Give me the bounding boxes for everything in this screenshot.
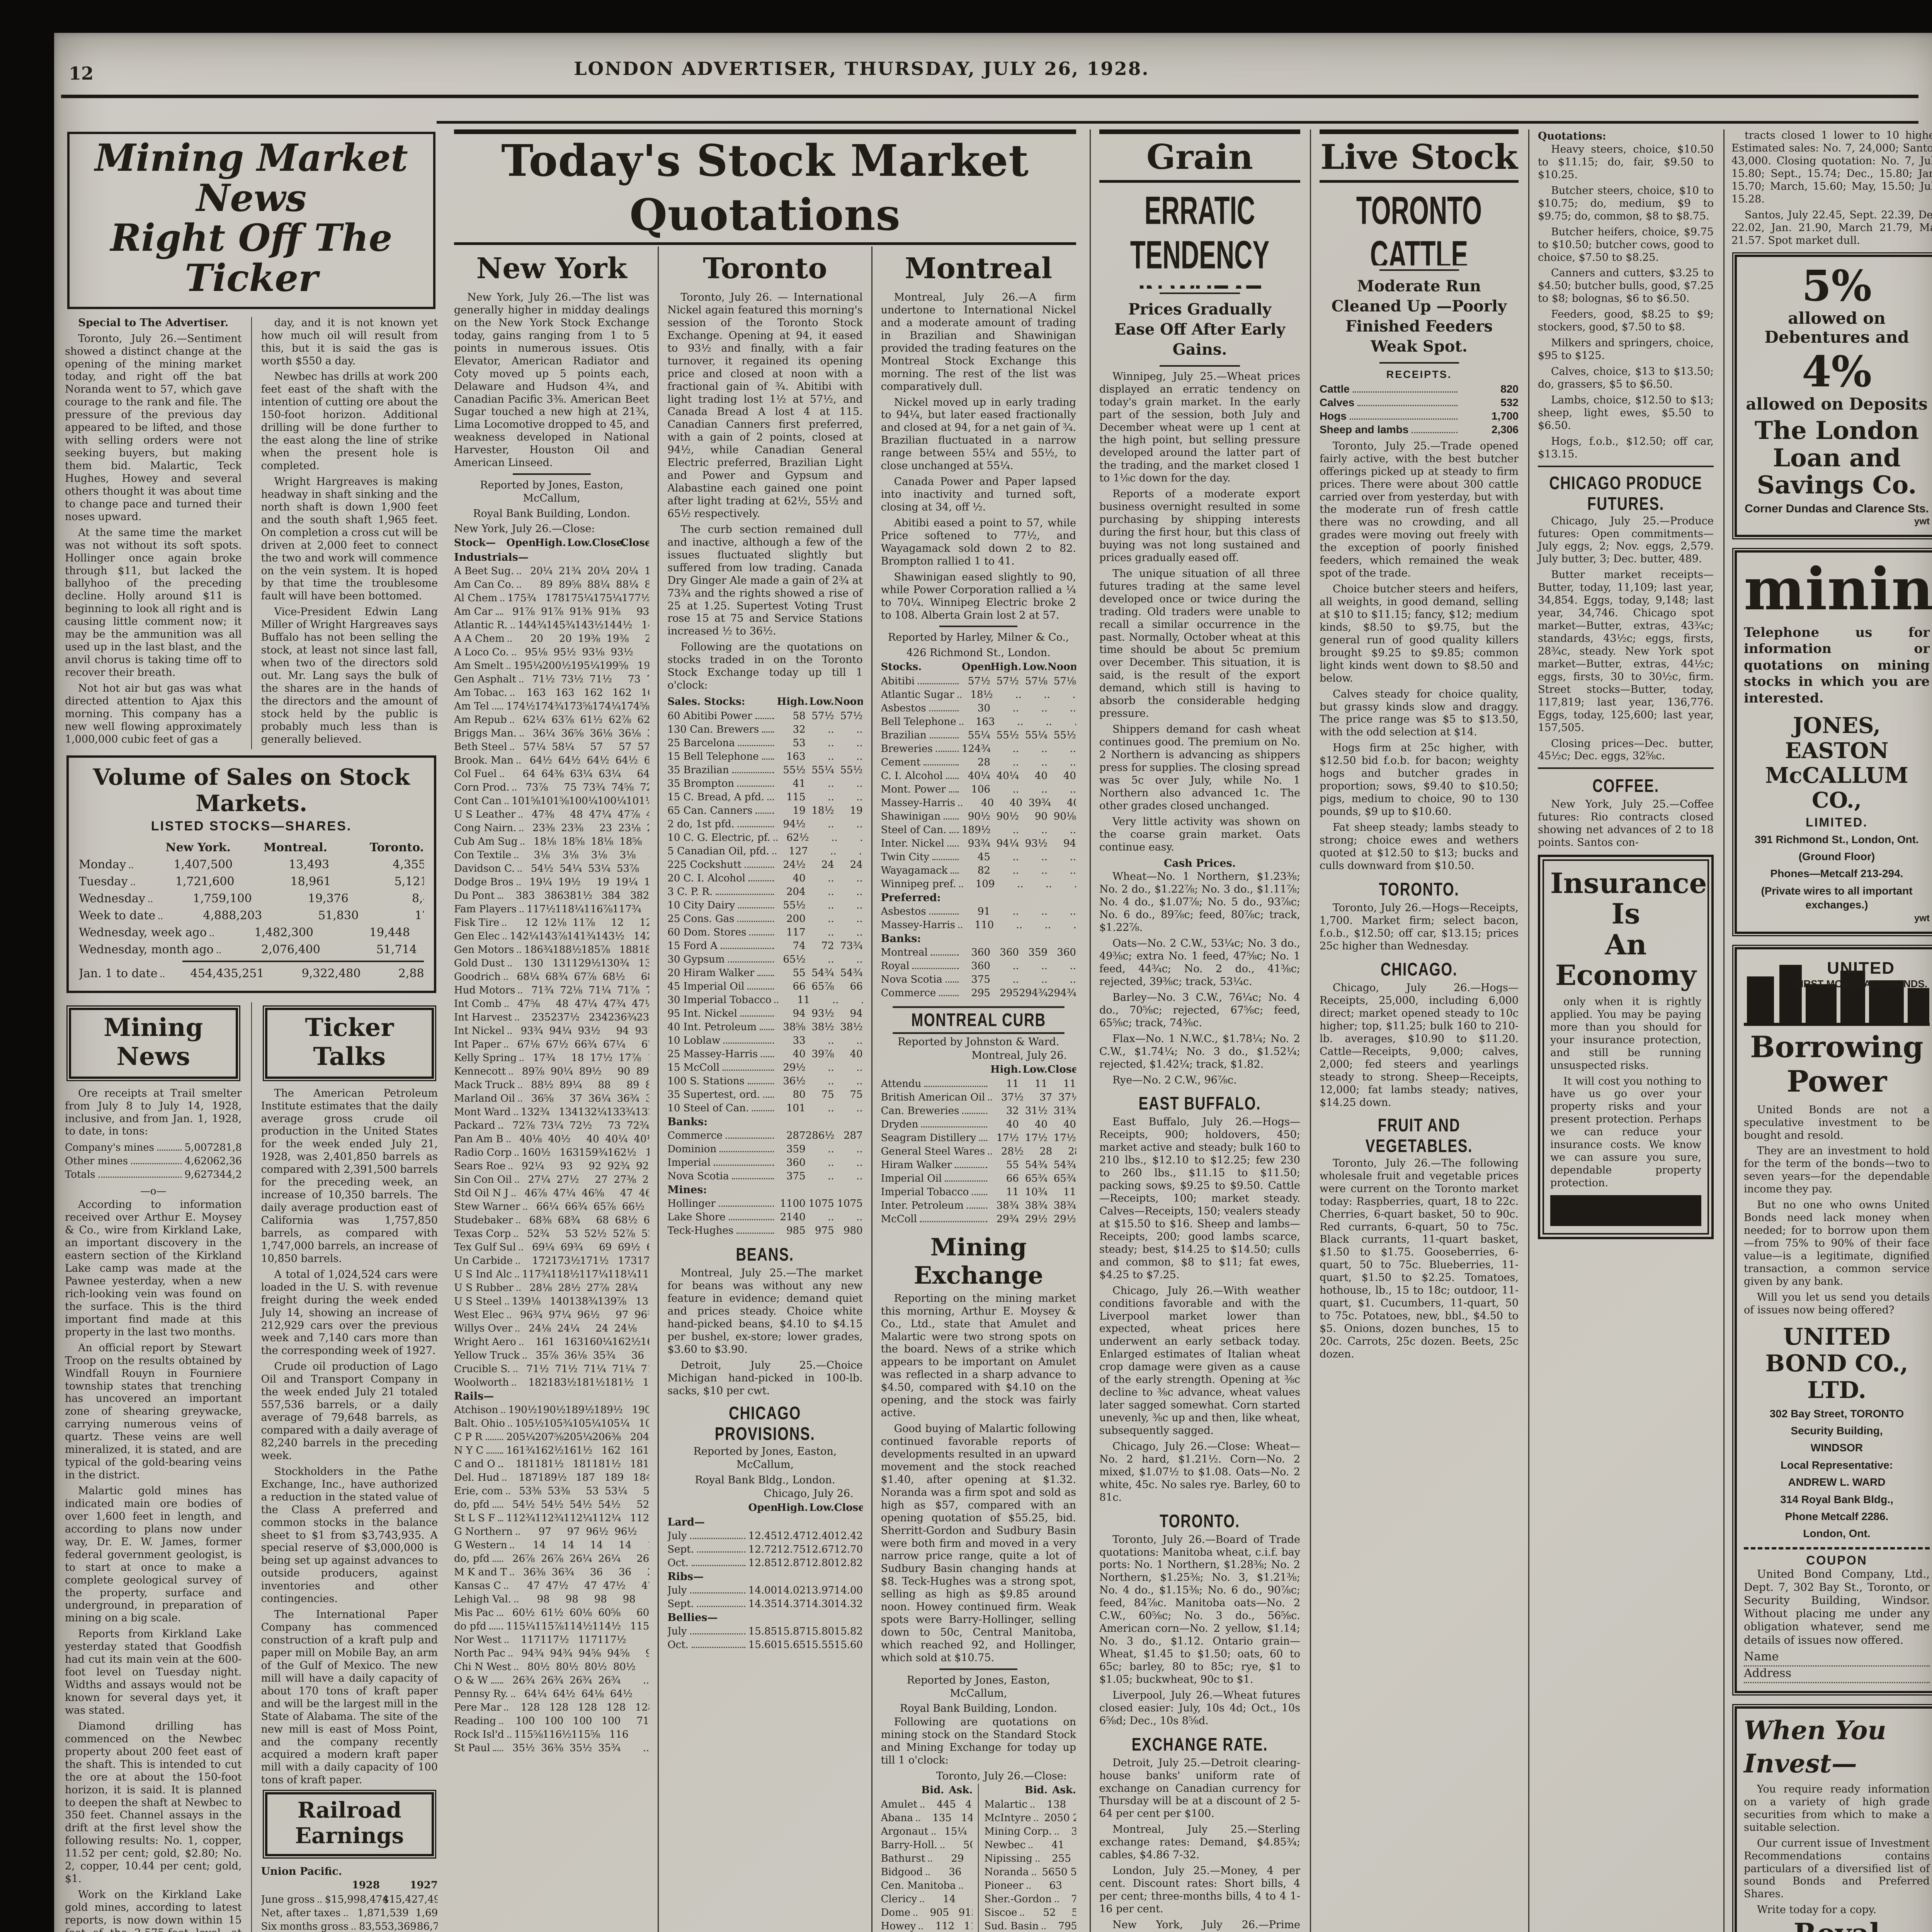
quote-value: .. — [838, 993, 862, 1007]
mex-dateline: Toronto, July 26.—Close: — [881, 1770, 1067, 1782]
quote-value: .. — [626, 1633, 649, 1647]
quote-value: 162 — [632, 686, 650, 700]
leader-dots — [755, 718, 774, 719]
quote-value: 54¾ — [1019, 1158, 1048, 1172]
leader-dots — [507, 1141, 510, 1142]
quote-value: .. — [993, 688, 1022, 702]
quote-value: 11 — [1019, 1077, 1048, 1091]
leader-dots — [690, 1592, 745, 1594]
leader-dots — [932, 1833, 935, 1835]
quote-value: 128 — [626, 1701, 649, 1714]
quote-name: Sears Roe — [454, 1160, 505, 1173]
quote-value: 73¾ — [577, 781, 605, 794]
mining-news-headline-box: Mining News — [69, 1008, 238, 1079]
quote-value: 117 — [569, 1633, 597, 1647]
quote-value: 187 — [566, 1471, 595, 1485]
quote-value: 64¼ — [518, 1687, 547, 1701]
quote-value: 3⅛ — [521, 849, 550, 862]
quote-value: 130 — [629, 957, 649, 970]
quote-row: Am Repub62¼63⅞61½62⅞62⅜ — [454, 713, 649, 727]
quote-value: 65⅞ — [587, 1200, 616, 1214]
quote-value: 100 — [592, 1714, 621, 1728]
montreal-quote-table: Abitibi57½57½57⅛57⅛Atlantic Sugar18½....… — [881, 675, 1076, 1000]
quote-value: 94¾ — [515, 1647, 544, 1660]
quote-row: 10 Loblaw33.... — [667, 1034, 862, 1048]
paragraph: Closing prices—Dec. butter, 45½c; Dec. e… — [1538, 738, 1714, 763]
quote-value: .. — [1019, 864, 1048, 878]
quote-name: Yellow Truck — [454, 1349, 520, 1362]
quote-value: 94⅝ — [601, 1647, 630, 1660]
mex-col1: Amulet445450Abana135140Argonaut15¼16Barr… — [881, 1798, 973, 1932]
quote-name: Massey-Harris — [881, 918, 955, 932]
live-stock-headline: TORONTO CATTLE MARKET STEADY — [1342, 188, 1497, 265]
quote-value: 1075 — [806, 1197, 834, 1211]
quote-value: .. — [994, 918, 1022, 932]
quote-value: 38¾ — [990, 1199, 1019, 1213]
quote-value: 985 — [777, 1224, 806, 1238]
quote-value: 294¾ — [1048, 986, 1076, 1000]
leader-dots — [505, 1642, 509, 1643]
mex-col2: Malartic138140McIntyre20502075Mining Cor… — [984, 1798, 1076, 1932]
quote-name: U S Rubber — [454, 1281, 514, 1295]
quote-value: 105 — [629, 1417, 649, 1430]
quote-value: 71 — [621, 1714, 649, 1728]
union-pacific-label: Union Pacific. — [261, 1865, 438, 1879]
ticker-talks-title: Ticker Talks — [270, 1013, 430, 1071]
quote-name: Am Repub — [454, 713, 507, 727]
leader-dots — [518, 992, 522, 993]
quote-value: 19,448 — [313, 924, 410, 941]
quote-value: 143½ — [575, 619, 604, 632]
quote-name: Pan Am B — [454, 1133, 503, 1146]
leader-dots — [523, 1209, 527, 1210]
quote-value: 382 — [621, 889, 649, 903]
leader-dots — [496, 614, 503, 615]
quote-name: Al Chem — [454, 592, 497, 605]
paragraph: Milkers and springers, choice, $95 to $1… — [1538, 337, 1714, 362]
quote-row: Cen. Manitoba9293 — [881, 1879, 973, 1893]
quote-value: .. — [806, 1211, 834, 1224]
paragraph: The International Paper Company has comm… — [261, 1609, 438, 1787]
quote-value: 71½ — [549, 1362, 578, 1376]
quote-value: 40½ — [542, 1133, 571, 1146]
paragraph: Shawinigan eased slightly to 90, while P… — [881, 571, 1076, 622]
quote-value: 55½ — [1048, 729, 1076, 742]
quote-value: 38⅝ — [777, 1020, 806, 1034]
mex-source: Reported by Jones, Easton, McCallum, — [881, 1674, 1076, 1700]
quote-value: .. — [806, 723, 834, 736]
paragraph: Rye—No. 2 C.W., 96⅞c. — [1099, 1074, 1300, 1087]
quote-value: 36 — [631, 1566, 649, 1579]
quote-value: 205¼ — [563, 1430, 592, 1444]
quote-value: 795 — [1049, 1920, 1076, 1932]
quote-value: .. — [806, 818, 834, 831]
quote-value: 200½ — [542, 659, 571, 673]
quote-value: 35¾ — [587, 1349, 616, 1362]
quote-value: 38¾ — [1019, 1199, 1048, 1213]
leader-dots — [518, 1087, 522, 1088]
quote-value: 130 — [515, 957, 543, 970]
quote-value: 360 — [962, 959, 990, 973]
quote-value: 139 — [626, 1295, 650, 1308]
london-loan-tag: ywt — [1744, 516, 1930, 527]
ore-receipts-intro: Ore receipts at Trail smelter from July … — [65, 1087, 242, 1138]
divider — [939, 1668, 1017, 1670]
quote-value: 89¼ — [638, 578, 649, 592]
quote-row: Gen Elec142¼143⅞141¾143½142 — [454, 930, 649, 943]
quote-value: .. — [1052, 878, 1076, 891]
rate-4-percent: 4% — [1744, 350, 1930, 393]
quote-row: 45 Imperial Oil6665⅞66 — [667, 980, 862, 993]
quote-value: 129½ — [572, 957, 600, 970]
leader-dots — [512, 1384, 516, 1386]
quote-value: Bid. — [915, 1784, 944, 1797]
quotations-banner: Today's Stock Market Quotations — [454, 129, 1076, 245]
quote-value: 15.60 — [834, 1638, 863, 1652]
leader-dots — [492, 708, 503, 709]
quote-row: do, pfd26⅞26⅞26¼26¼26 — [454, 1552, 649, 1566]
quote-name: 100 S. Stations — [667, 1075, 745, 1088]
leader-dots — [737, 921, 774, 922]
insurance-title-2: An Economy — [1550, 929, 1701, 990]
quote-row: Massey-Harris110...... — [881, 918, 1076, 932]
quote-name: Asbestos — [881, 905, 926, 918]
quote-value: 98 — [550, 1593, 578, 1606]
paragraph: Shippers demand for cash wheat continues… — [1099, 723, 1300, 813]
quote-value: 52¾ — [635, 1227, 649, 1241]
quote-value: 12.70 — [834, 1543, 863, 1556]
quote-value: 89¼ — [554, 1078, 582, 1092]
cash-prices-label: Cash Prices. — [1099, 857, 1300, 871]
quote-value: Open. — [962, 660, 990, 674]
volume-table-head: New York.Montreal.Toronto. — [79, 839, 424, 856]
ny-source-2: Royal Bank Building, London. — [454, 507, 649, 520]
quote-name: Montreal — [881, 946, 928, 959]
mining-news-title: Mining News — [73, 1013, 233, 1071]
ticker-talks-column: Ticker Talks The American Petroleum Inst… — [251, 1002, 438, 1932]
quote-name: Lake Shore — [667, 1211, 725, 1224]
quote-value: 40⅛ — [628, 1133, 650, 1146]
quote-name: Sher.-Gordon — [984, 1893, 1051, 1906]
headline-right-off-the-ticker: Right Off The Ticker — [73, 218, 430, 298]
leader-dots — [512, 789, 516, 791]
quote-value: .. — [806, 1156, 834, 1170]
quote-value: 14.37 — [777, 1597, 806, 1611]
quote-value: 94 — [834, 1007, 863, 1020]
quote-name: 45 Imperial Oil — [667, 980, 744, 993]
quote-value: 14 — [927, 1893, 956, 1906]
leader-dots — [958, 805, 962, 806]
quote-value: 177½ — [622, 592, 649, 605]
quote-value: 182 — [519, 1376, 548, 1389]
quote-row: Attendu111111 — [881, 1077, 1076, 1091]
quote-value: 128 — [568, 1701, 597, 1714]
quote-value: 64 — [507, 767, 536, 781]
leader-dots — [1042, 1928, 1046, 1929]
quote-name: June gross — [261, 1893, 315, 1906]
quote-row: Bidgood3637 — [881, 1866, 973, 1879]
quote-row: Un Carbide172173½171½173172¼ — [454, 1254, 649, 1268]
quote-row: McColl29¾29½29½ — [881, 1213, 1076, 1226]
quote-name: Studebaker — [454, 1214, 513, 1227]
quote-value: 287 — [777, 1129, 806, 1143]
quote-name: Int Nickel — [454, 1024, 505, 1038]
fruit-vegetables-title: FRUIT AND VEGETABLES. — [1332, 1115, 1507, 1156]
leader-dots — [502, 1480, 506, 1481]
toronto-table-head: Sales. Stocks:High.Low.Noon. — [667, 695, 862, 709]
united-rep-name: ANDREW L. WARD — [1744, 1475, 1930, 1489]
debentures-line: allowed on Debentures and — [1744, 309, 1930, 347]
leader-dots — [503, 938, 507, 939]
quote-row: Chi N West80½80½80½80½80 — [454, 1660, 649, 1674]
quote-name: Howey — [881, 1920, 916, 1932]
quote-name: 130 Can. Brewers — [667, 723, 759, 736]
quote-value: 48 — [554, 808, 583, 821]
quote-value: 36⅛ — [612, 727, 641, 740]
ny-table-head: Stock—Open.High.Low.Close.Close — [454, 536, 649, 550]
quote-value: 89⅝ — [553, 578, 581, 592]
quote-name: 35 Brazilian — [667, 764, 729, 777]
quote-name: Beth Steel — [454, 740, 507, 754]
quote-value: .. — [806, 1034, 834, 1048]
quote-name: Crucible S. — [454, 1362, 510, 1376]
quote-value: 8,030 — [417, 941, 424, 958]
quote-name: Bell Telephone — [881, 715, 956, 729]
quote-value: 62⅞ — [603, 713, 631, 727]
quote-value: .. — [1019, 905, 1048, 918]
quote-value: 68½ — [597, 970, 625, 984]
leader-dots — [929, 913, 959, 915]
quote-value: 14 — [517, 1539, 546, 1552]
quote-value: 75 — [806, 1088, 834, 1102]
coupon-address-line[interactable]: Address — [1744, 1667, 1930, 1683]
quote-row: Willys Over24⅛24¼2424⅛24 — [454, 1322, 649, 1335]
quote-row: Pere Mar128128128128128 — [454, 1701, 649, 1714]
leader-dots — [732, 1178, 774, 1179]
leader-dots — [716, 894, 774, 895]
paragraph: Diamond drilling has commenced on the Ne… — [65, 1720, 242, 1886]
quote-row: M K and T36⅜36¾363636 — [454, 1566, 649, 1579]
leader-dots — [921, 1126, 987, 1128]
quote-value: 68¾ — [552, 1214, 580, 1227]
quote-row: Bid.Ask. — [984, 1784, 1076, 1797]
quote-value: 12.85 — [748, 1556, 777, 1570]
quote-value: 15.55 — [806, 1638, 834, 1652]
quote-value: 20 — [515, 632, 543, 646]
quote-value: 12.40 — [806, 1529, 834, 1543]
quote-value: 92½ — [630, 1160, 649, 1173]
quote-row: Barry-Holl.5052 — [881, 1838, 973, 1852]
quote-value: Open. — [748, 1501, 777, 1515]
quote-name: Inter. Nickel — [881, 837, 944, 850]
quote-value: 20 — [629, 632, 650, 646]
quote-value: 115⅞ — [535, 1620, 563, 1633]
quote-row: Mining Corp.365370 — [984, 1825, 1076, 1838]
quote-name: Steel of Can. — [881, 823, 947, 837]
quote-row: Sheep and lambs2,306 — [1320, 423, 1519, 436]
quote-value: 204 — [621, 1430, 649, 1444]
quote-value: .. — [834, 791, 863, 804]
quote-value: 16 — [967, 1825, 973, 1838]
quote-row: Atchison190½190½189½189½190 — [454, 1403, 649, 1417]
quote-row: Davidson C.54½54¼53¼53⅞54 — [454, 862, 649, 876]
quote-row: Radio Corp160½163159¾162½160 — [454, 1146, 649, 1160]
leader-dots — [748, 880, 774, 881]
quote-value: 80½ — [521, 1660, 550, 1674]
quote-value: 40⅛ — [514, 1133, 542, 1146]
quote-value: 18⅝ — [556, 835, 585, 849]
quote-value: 19 — [777, 804, 806, 818]
quote-row: C and O181181½181181½181 — [454, 1458, 649, 1471]
quote-value: 89 — [611, 1078, 639, 1092]
quote-value: 163 — [555, 1335, 583, 1349]
quote-value: 57¼ — [631, 740, 649, 754]
livestock-quotations-label: Quotations: — [1538, 129, 1714, 143]
quote-value: 132¼ — [578, 1105, 607, 1119]
quote-row: Imperial Oil6665¾65¾ — [881, 1172, 1076, 1185]
quote-value: 46¾ — [633, 1187, 650, 1200]
chicago-livestock-para: Chicago, July 26.—Hogs—Receipts, 25,000,… — [1320, 982, 1519, 1109]
quote-value: 173½ — [551, 1254, 580, 1268]
leader-dots — [723, 1043, 774, 1044]
paragraph: Reports of a moderate export business ov… — [1099, 488, 1300, 565]
leader-dots — [515, 1019, 519, 1020]
masthead-rule — [61, 95, 1918, 98]
quote-value: 237½ — [551, 1011, 579, 1024]
quote-value: 11 — [1048, 1077, 1076, 1091]
quote-name: Stew Warner — [454, 1200, 520, 1214]
quote-value: 53 — [549, 1227, 578, 1241]
quote-value: 112¼ — [563, 1512, 592, 1525]
quote-name: Inter. Petroleum — [881, 1199, 964, 1213]
quote-value: High. — [777, 1501, 806, 1515]
quote-value: 36⅝ — [525, 1092, 554, 1105]
quote-value: .. — [806, 926, 834, 939]
quote-value: 55¼ — [962, 729, 990, 742]
quote-value: .. — [834, 1034, 863, 1048]
quote-value: 133¾ — [607, 1105, 635, 1119]
quote-value: 24½ — [777, 858, 806, 872]
grain-subhead: Prices Gradually Ease Off After Early Ga… — [1111, 299, 1289, 360]
quote-value: 188 — [610, 943, 638, 957]
paragraph: Detroit, July 25.—Choice Michigan hand-p… — [667, 1359, 862, 1398]
quote-row: Studebaker68⅜68¾6868½68¼ — [454, 1214, 649, 1227]
quote-value: 163 — [546, 686, 575, 700]
quote-value: 95 — [630, 1647, 650, 1660]
quote-value: 36¾ — [611, 1092, 639, 1105]
quote-row: Company's mines5,007281,892 — [65, 1141, 242, 1155]
quote-value: 1,871,539 — [351, 1906, 409, 1920]
jones-ad-body: Telephone us for information or quotatio… — [1744, 624, 1930, 707]
quote-name: Hollinger — [667, 1197, 715, 1211]
quote-row: A A Chem202019⅜19⅜20 — [454, 632, 649, 646]
quote-value: 67½ — [540, 1038, 568, 1051]
quote-row: Monday1,407,50013,4934,355 — [79, 856, 424, 873]
quote-value: 36 — [933, 1866, 961, 1879]
quote-name: Am Car — [454, 605, 493, 619]
quote-row: 15 McColl29½.... — [667, 1061, 862, 1075]
ore-receipts-table: Company's mines5,007281,892Other mines4,… — [65, 1141, 242, 1182]
united-rep-label: Local Representative: — [1744, 1458, 1930, 1472]
quote-value: 55½ — [777, 899, 806, 912]
quote-value: 71¼ — [578, 1362, 606, 1376]
divider — [1160, 365, 1240, 367]
quote-row: Twin City45...... — [881, 850, 1076, 864]
quote-value: 12.82 — [834, 1556, 863, 1570]
jones-easton-ad: mining Telephone us for information or q… — [1735, 550, 1932, 934]
quote-value: 55½ — [834, 764, 863, 777]
quote-value: 10¾ — [1019, 1185, 1048, 1199]
quote-row: Woolworth182183½181½181½182 — [454, 1376, 649, 1389]
leader-dots — [762, 759, 774, 760]
quote-name: Totals — [65, 1168, 95, 1182]
paragraph: The American Petroleum Institute estimat… — [261, 1087, 438, 1265]
quote-value: 181½ — [576, 1376, 605, 1389]
quote-name: Briggs Man. — [454, 727, 517, 740]
quote-row: Atlantic R.144¾145¾143½144½144 — [454, 619, 649, 632]
quote-row: Shawinigan90½90½9090⅛ — [881, 810, 1076, 823]
paragraph: The unique situation of all three future… — [1099, 568, 1300, 720]
quote-row: Kelly Spring17¾1817½17⅞17¾ — [454, 1051, 649, 1065]
receipts-table: Cattle820Calves532Hogs1,700Sheep and lam… — [1320, 382, 1519, 436]
quote-name: Newbec — [984, 1838, 1026, 1852]
quote-row: Massey-Harris404039¾40 — [881, 796, 1076, 810]
quote-value: 14.00 — [834, 1584, 863, 1597]
quote-name: Clericy — [881, 1893, 917, 1906]
quote-value: .. — [990, 783, 1019, 796]
quote-value: 53⅜ — [542, 1485, 570, 1498]
quote-value: 206⅜ — [592, 1430, 621, 1444]
leader-dots — [493, 1507, 503, 1508]
quote-value: 68¾ — [539, 970, 568, 984]
leader-dots — [486, 1452, 503, 1454]
quote-value: 124¾ — [962, 742, 990, 756]
quote-value: 12.72 — [748, 1543, 777, 1556]
quote-value: 20 — [543, 632, 572, 646]
quote-value: 139⅞ — [598, 1295, 626, 1308]
coupon-name-line[interactable]: Name — [1744, 1650, 1930, 1667]
quote-value: 161¾ — [506, 1444, 535, 1458]
quote-value: 174¼ — [592, 700, 621, 713]
quote-value: .. — [1048, 905, 1076, 918]
quote-value: 52¾ — [521, 1227, 549, 1241]
quote-value: 26¾ — [592, 1674, 621, 1687]
quote-value: 112 — [621, 1512, 649, 1525]
quote-value: .. — [834, 1211, 863, 1224]
leader-dots — [509, 1168, 512, 1169]
quote-name: A A Chem — [454, 632, 505, 646]
quote-row: Other mines4,62062,368 — [65, 1155, 242, 1168]
quote-value: 88¼ — [639, 1078, 650, 1092]
quote-value: .. — [834, 926, 863, 939]
quote-row: Rock Isl'd115⅝116½115⅝116.. — [454, 1728, 649, 1742]
quote-value: 19,376 — [252, 890, 349, 907]
leader-dots — [697, 1551, 745, 1553]
quote-value: 28¼ — [609, 1281, 638, 1295]
quote-name: Jan. 1 to date — [79, 965, 157, 982]
quote-value: .. — [834, 723, 863, 736]
leader-dots — [757, 975, 774, 976]
quote-value: 17½ — [1019, 1131, 1048, 1145]
toronto-bot-title: TORONTO. — [1111, 1511, 1288, 1532]
row-label: Preferred: — [881, 891, 1076, 905]
ticker-col1-paras: Toronto, July 26.—Sentiment showed a dis… — [65, 333, 242, 746]
quote-name: Siscoe — [984, 1906, 1017, 1920]
quote-value: 69¾ — [554, 1241, 583, 1254]
quote-value: 47½ — [626, 997, 650, 1011]
leader-dots — [131, 1163, 181, 1164]
quote-value: 40 — [1048, 769, 1076, 783]
